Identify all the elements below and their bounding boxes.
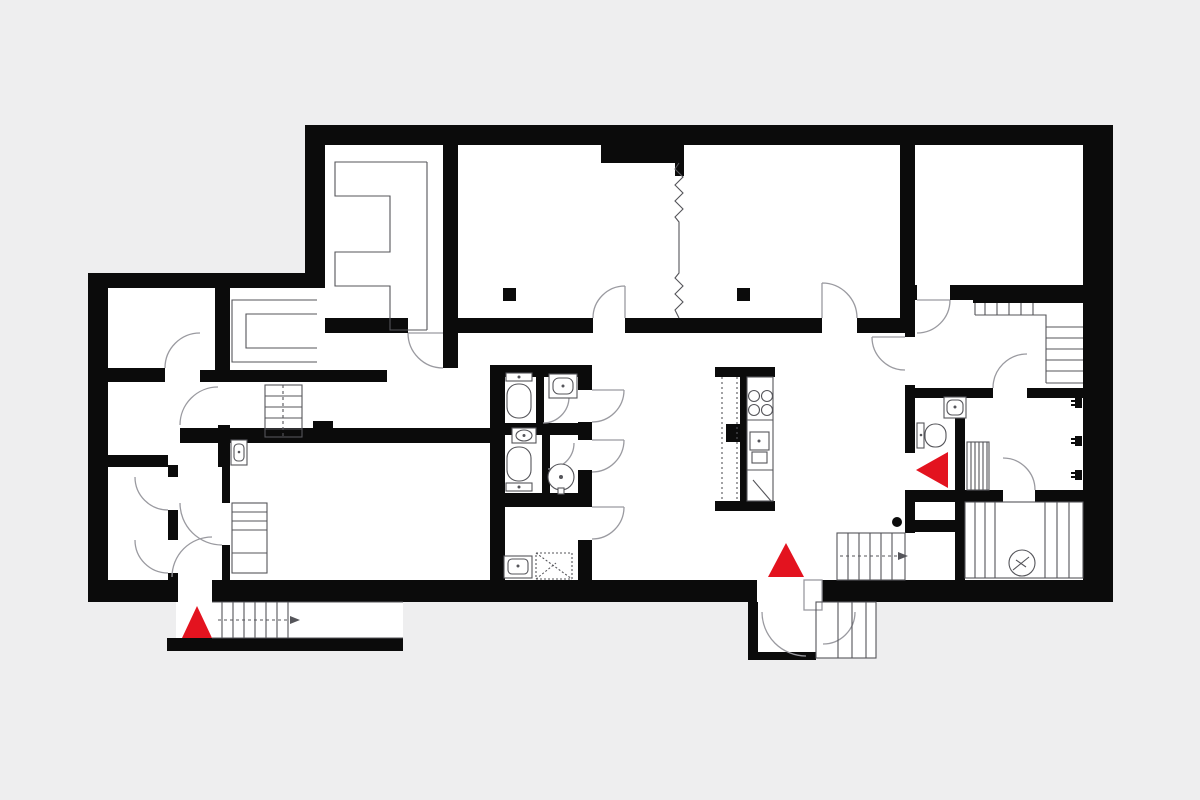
floor-plan-svg [0,0,1200,800]
opening-vestibule-door [993,388,1027,398]
wall-bath1-divider [536,372,544,428]
sink-icon-utility [504,556,532,578]
opening-east-room-door [1003,490,1035,502]
wall-outer-east [1083,125,1113,602]
wall-wc-south [912,520,957,532]
kitchen-island-north-cap [715,367,775,377]
opening-big-room-door [222,503,230,545]
column-room1 [503,288,516,301]
wall-east-rooms-divider [915,490,1083,502]
opening-ne-room-door [917,285,950,300]
wall-roomA-south [105,368,165,382]
toilet-icon-bath2 [506,447,532,491]
column-dot [892,517,902,527]
wall-big-room-north [180,428,500,443]
wall-north-notch [601,145,684,163]
wall-upper-block-west [305,145,325,288]
opening-utility-door [578,507,592,540]
opening-roomC-door1 [168,477,178,510]
kitchen-sink-icon [750,432,769,463]
wall-wc-east [955,398,965,600]
sink-icon-big-room [231,440,247,465]
sink-icon-bath1 [549,374,577,398]
west-exterior-landing [212,602,403,638]
wall-roomA-east [215,288,230,382]
wall-room1-west [443,145,458,368]
wall-stair-north-bar [973,293,1083,303]
wall-bath2-divider [542,435,550,495]
opening-south-entrance [757,580,807,602]
opening-bath2-door [578,440,592,470]
south-door-leaf [804,580,822,610]
sink-icon-wc [944,397,966,418]
wall-porch-west [748,602,758,660]
toilet-icon-wc [917,423,946,448]
wall-corridor-north [200,370,387,382]
wall-partition-stub [675,145,684,176]
sink-icon-bath2 [512,428,536,443]
opening-room1-door [593,318,625,333]
column-room2 [737,288,750,301]
opening-bath1-door [578,390,592,422]
wall-east-hall-a [905,293,915,337]
wall-east-hall-b [905,385,915,453]
wall-bath-west [490,365,505,580]
floor-plan-canvas [0,0,1200,800]
wall-wardrobe-room-south [325,318,408,333]
wall-roomB-south [98,455,168,467]
wall-pier [313,421,333,443]
wall-bath-mid2 [490,493,592,507]
kitchen-island-south-cap [715,501,775,511]
kitchen-island-pier [726,424,742,442]
toilet-icon-bath1 [506,373,532,418]
wall-west-wing-north [88,273,325,288]
wall-west-retaining [167,638,403,651]
wall-outer-west [88,288,108,602]
opening-wardrobe-room-door [408,318,443,333]
wall-outer-north [305,125,1113,145]
opening-room2-door [822,318,857,333]
opening-west-entrance [178,580,212,602]
